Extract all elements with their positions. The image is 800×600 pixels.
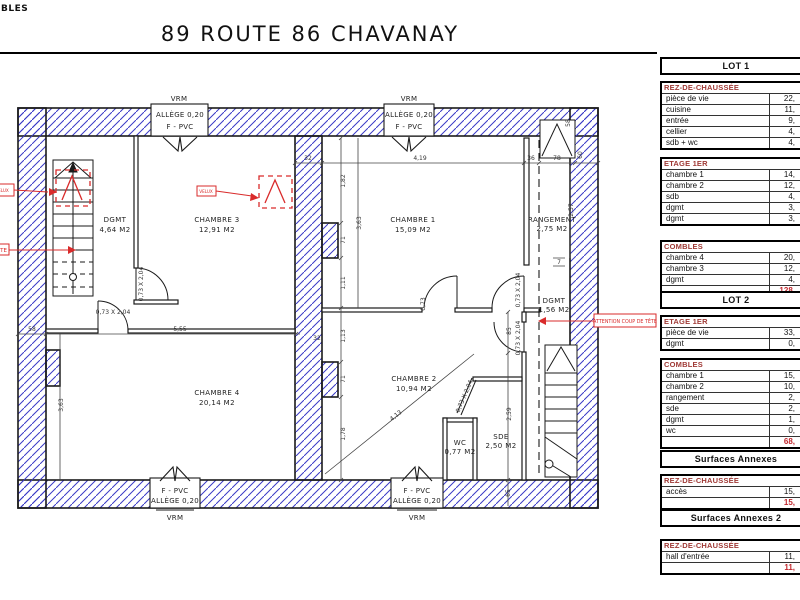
table-surfaces-annexes-2: Surfaces Annexes 2 REZ-DE-CHAUSSÉE hall …: [660, 509, 800, 575]
room-area: 1,56 M2: [538, 306, 569, 314]
door-dim-label: 0,73 X 2,04: [515, 273, 522, 308]
room-area: 10,94 M2: [396, 385, 432, 393]
dim-label: 32: [313, 335, 321, 342]
window-allege-label: ALLÈGE 0,20: [156, 110, 204, 119]
room-name: RANGEMENT: [528, 216, 576, 224]
window-allege-label: ALLÈGE 0,20: [385, 110, 433, 119]
window-frame-label: F - PVC: [396, 123, 423, 131]
table-row: chambre 115,: [662, 371, 800, 382]
window-allege-label: ALLÈGE 0,20: [393, 496, 441, 505]
dim-label: 36: [527, 155, 535, 162]
table-row: chambre 420,: [662, 253, 800, 264]
section-header: REZ-DE-CHAUSSÉE: [662, 541, 800, 552]
table-lot2: LOT 2 ETAGE 1ER pièce de vie33, dgmt0, C…: [660, 291, 800, 449]
table-row: dgmt0,: [662, 339, 800, 349]
dim-label: 71: [340, 375, 347, 383]
sa-rdc-block: REZ-DE-CHAUSSÉE accès15, 15,: [660, 474, 800, 510]
table-lot2-title: LOT 2: [660, 291, 800, 309]
dim-label: 2,57: [568, 203, 575, 217]
velux-callout-label: VELUX: [199, 189, 213, 194]
table-row: dgmt3,: [662, 203, 800, 214]
table-row: dgmt3,: [662, 214, 800, 224]
table-row: cellier4,: [662, 127, 800, 138]
table-sa2-title: Surfaces Annexes 2: [660, 509, 800, 527]
dim-label: 5,55: [173, 326, 187, 333]
window-frame-label: F - PVC: [167, 123, 194, 131]
table-row: sde2,: [662, 404, 800, 415]
leader-arrow: [250, 193, 259, 201]
table-row: entrée9,: [662, 116, 800, 127]
table-surfaces-annexes: Surfaces Annexes REZ-DE-CHAUSSÉE accès15…: [660, 450, 800, 510]
section-header: ETAGE 1ER: [662, 159, 800, 170]
window-frame-label: F - PVC: [162, 487, 189, 495]
dim-label: 3,63: [58, 398, 65, 412]
room-area: 2,75 M2: [536, 225, 567, 233]
lot1-rdc-block: REZ-DE-CHAUSSÉE pièce de vie22, cuisine1…: [660, 81, 800, 150]
room-area: 2,50 M2: [485, 442, 516, 450]
table-row: hall d'entrée11,: [662, 552, 800, 563]
table-row: accès15,: [662, 487, 800, 498]
dim-label: 58: [565, 119, 572, 127]
door-dim-label: 0,73 X 2,04: [138, 267, 145, 302]
sa2-rdc-block: REZ-DE-CHAUSSÉE hall d'entrée11, 11,: [660, 539, 800, 575]
lot1-etage-block: ETAGE 1ER chambre 114, chambre 212, sdb4…: [660, 157, 800, 226]
sa2-total: 11,: [769, 563, 800, 573]
dim-label: 65: [505, 489, 512, 497]
room-name: DGMT: [543, 297, 566, 305]
room-area: 15,09 M2: [395, 226, 431, 234]
dim-label: 1,82: [340, 174, 347, 188]
section-header: REZ-DE-CHAUSSÉE: [662, 83, 800, 94]
window-vrm-label: VRM: [401, 95, 418, 103]
door-dim-label: 0,73 X 2,04: [96, 309, 131, 316]
table-total-row: 15,: [662, 498, 800, 508]
room-area: 12,91 M2: [199, 226, 235, 234]
window-frame-label: F - PVC: [404, 487, 431, 495]
dim-label: 1,13: [340, 329, 347, 343]
velux-symbol: [259, 176, 292, 208]
dim-label: 1,11: [340, 276, 347, 290]
room-name: DGMT: [104, 216, 127, 224]
door-dim-label: 0,73 X 2,04: [455, 379, 475, 414]
dim-label: 7: [557, 259, 561, 266]
table-row: dgmt1,: [662, 415, 800, 426]
room-name: CHAMBRE 2: [391, 375, 436, 383]
tete-callout-label: TÊTE: [0, 246, 8, 254]
door-dim-label: 0,73 X 2,04: [515, 321, 522, 356]
dim-label: 60: [577, 151, 584, 159]
velux-callout-label: VELUX: [0, 188, 9, 193]
table-row: cuisine11,: [662, 105, 800, 116]
dim-label: 78: [553, 155, 561, 162]
table-total-row: 68,: [662, 437, 800, 447]
dim-label: 32: [304, 155, 312, 162]
room-name: CHAMBRE 4: [194, 389, 239, 397]
table-row: chambre 212,: [662, 181, 800, 192]
staircase-right: [545, 345, 577, 477]
table-row: dgmt4,: [662, 275, 800, 286]
table-row: wc0,: [662, 426, 800, 437]
table-row: rangement2,: [662, 393, 800, 404]
section-header: ETAGE 1ER: [662, 317, 800, 328]
room-name: SDE: [493, 433, 508, 441]
table-row: pièce de vie33,: [662, 328, 800, 339]
lot2-combles-block: COMBLES chambre 115, chambre 210, rangem…: [660, 358, 800, 449]
leader-line: [216, 191, 252, 196]
section-header: COMBLES: [662, 360, 800, 371]
table-row: chambre 312,: [662, 264, 800, 275]
dim-label: 2,59: [506, 407, 513, 421]
room-name: CHAMBRE 3: [194, 216, 239, 224]
table-lot1-title: LOT 1: [660, 57, 800, 75]
staircase-left: [53, 160, 93, 296]
dim-label: 58: [28, 326, 36, 333]
dim-label: 1,78: [340, 427, 347, 441]
table-row: pièce de vie22,: [662, 94, 800, 105]
lot2-etage-block: ETAGE 1ER pièce de vie33, dgmt0,: [660, 315, 800, 351]
room-area: 0,77 M2: [444, 448, 475, 456]
room-name: WC: [454, 439, 467, 447]
table-row: chambre 114,: [662, 170, 800, 181]
dim-label: 71: [340, 236, 347, 244]
room-name: CHAMBRE 1: [390, 216, 435, 224]
window-allege-label: ALLÈGE 0,20: [151, 496, 199, 505]
section-header: REZ-DE-CHAUSSÉE: [662, 476, 800, 487]
table-sa-title: Surfaces Annexes: [660, 450, 800, 468]
table-row: sdb + wc4,: [662, 138, 800, 148]
door-dim-label: 0,73: [420, 297, 427, 311]
window-vrm-label: VRM: [171, 95, 188, 103]
table-total-row: 11,: [662, 563, 800, 573]
room-area: 20,14 M2: [199, 399, 235, 407]
dim-label: 85: [506, 327, 513, 335]
lot2-total: 68,: [769, 437, 800, 447]
interior-walls: [46, 136, 540, 480]
section-header: COMBLES: [662, 242, 800, 253]
table-row: sdb4,: [662, 192, 800, 203]
room-area: 4,64 M2: [99, 226, 130, 234]
sa-total: 15,: [769, 498, 800, 508]
dim-label: 3,63: [356, 216, 363, 230]
dim-label: 4,19: [413, 155, 427, 162]
table-row: chambre 210,: [662, 382, 800, 393]
dim-label: 4,13: [389, 409, 404, 423]
lot1-combles-block: COMBLES chambre 420, chambre 312, dgmt4,…: [660, 240, 800, 298]
window-vrm-label: VRM: [167, 514, 184, 522]
table-lot1: LOT 1 REZ-DE-CHAUSSÉE pièce de vie22, cu…: [660, 57, 800, 298]
window-vrm-label: VRM: [409, 514, 426, 522]
